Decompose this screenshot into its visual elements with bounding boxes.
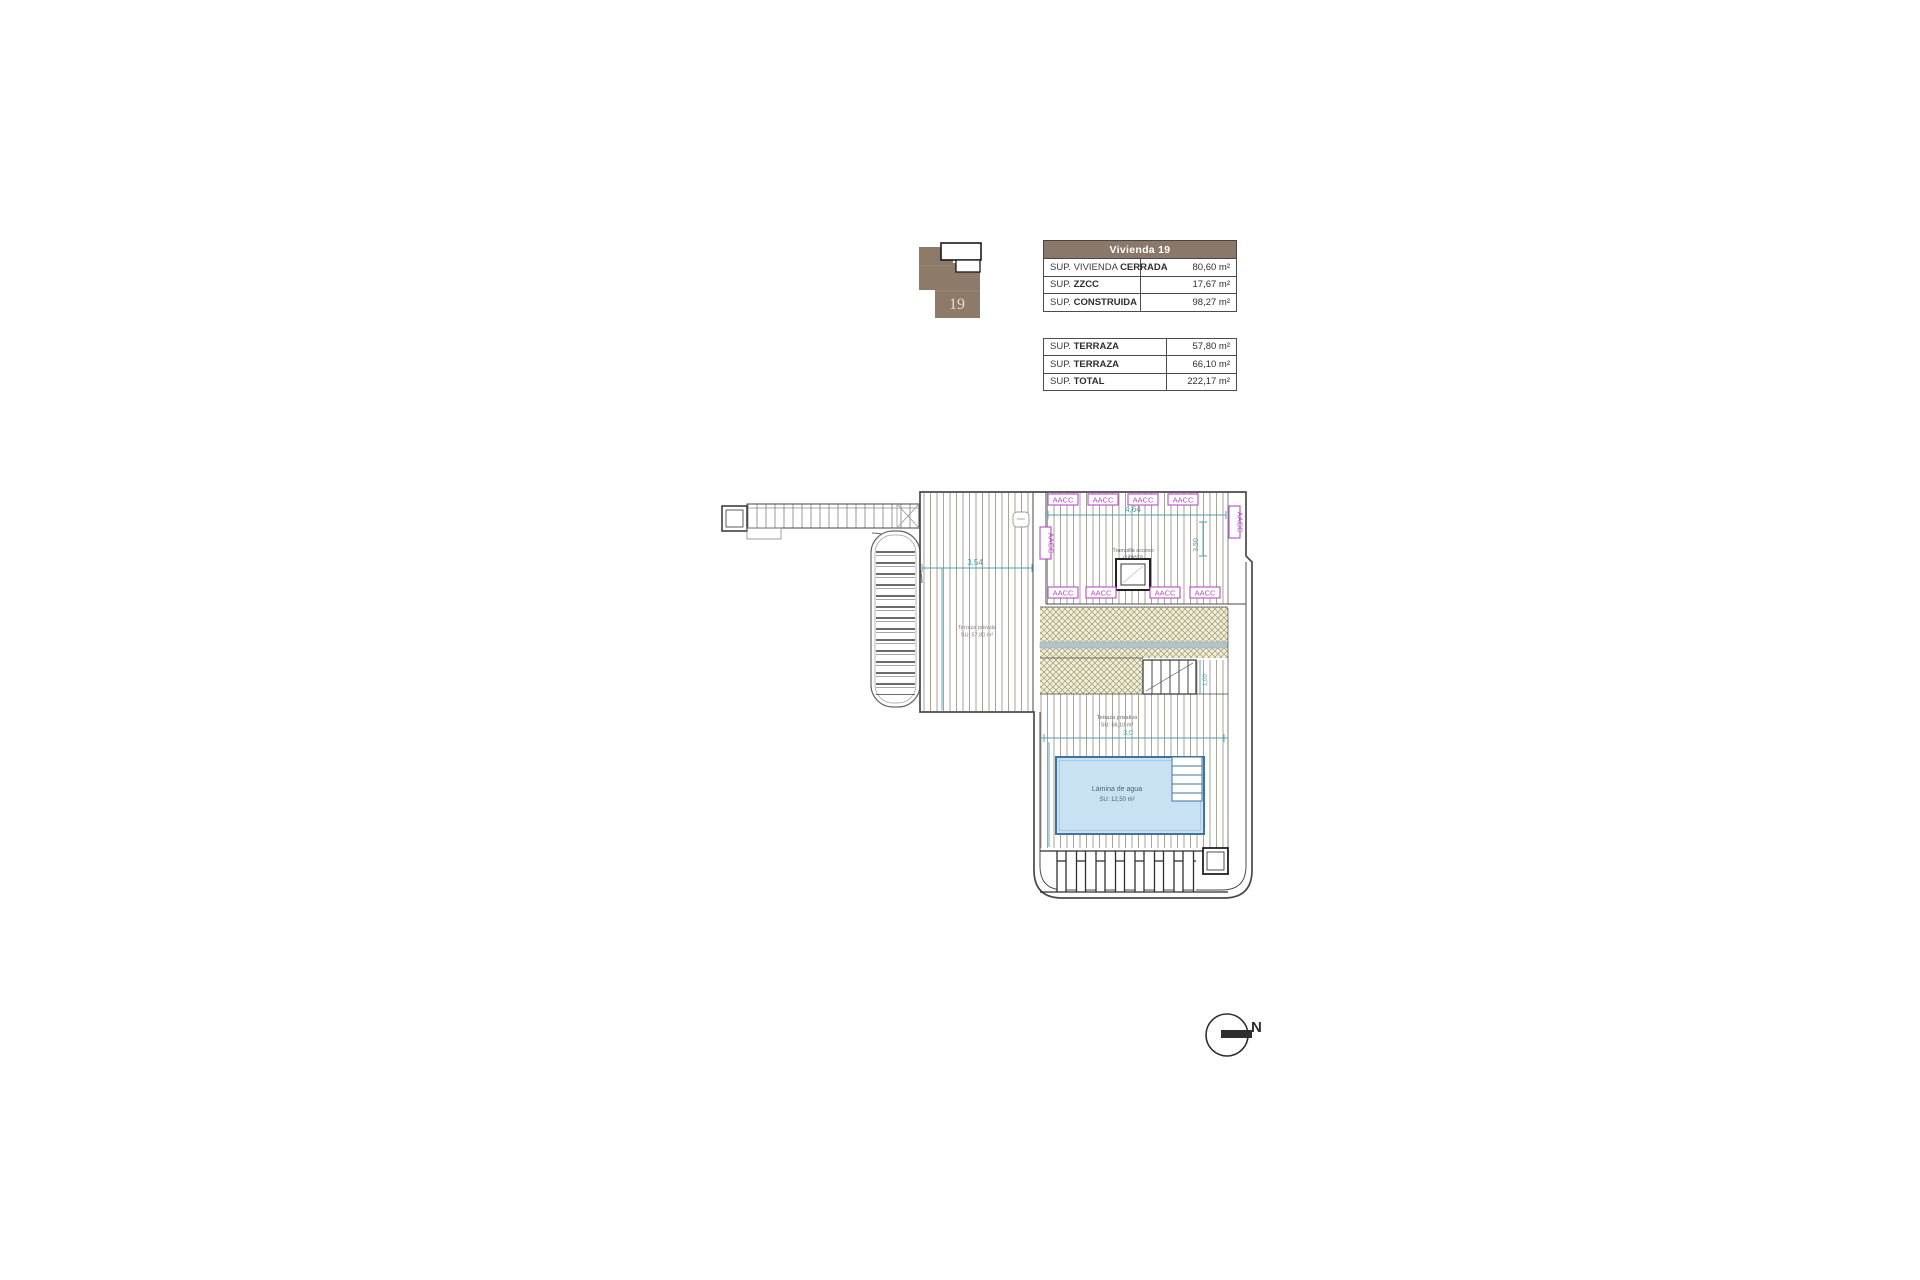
aacc-unit-box: AACC bbox=[1168, 494, 1198, 505]
aacc-unit-box: AACC bbox=[1086, 587, 1116, 598]
row-label: SUP. CONSTRUIDA bbox=[1044, 294, 1141, 312]
dim-left-deck: 3,54 bbox=[967, 558, 983, 567]
plan-sheet: 19 bbox=[0, 0, 1920, 1280]
row-label: SUP. TOTAL bbox=[1044, 373, 1167, 391]
aacc-unit-box: AACC bbox=[1088, 494, 1118, 505]
row-value: 57,80 m² bbox=[1167, 338, 1237, 356]
svg-text:AACC: AACC bbox=[1093, 496, 1114, 505]
pool-label-line2: SU: 12,50 m² bbox=[1099, 797, 1134, 803]
label-prefix: SUP. bbox=[1050, 279, 1074, 290]
label-bold: TOTAL bbox=[1074, 376, 1105, 387]
svg-text:AACC: AACC bbox=[1053, 589, 1074, 598]
svg-text:AACC: AACC bbox=[1053, 496, 1074, 505]
table-title: Vivienda 19 bbox=[1044, 241, 1237, 259]
page: { "key_plan": { "unit_number": "19" }, "… bbox=[0, 0, 1920, 1280]
compass: N bbox=[1206, 1014, 1262, 1056]
key-plan-unit-number: 19 bbox=[949, 296, 965, 313]
dim-right: 3,50 bbox=[1193, 538, 1200, 552]
terraza-upper-line2: SU: 57,80 m² bbox=[961, 633, 994, 639]
row-value: 98,27 m² bbox=[1140, 294, 1237, 312]
pool-label-line1: Lámina de agua bbox=[1092, 786, 1142, 793]
label-bold: TERRAZA bbox=[1074, 341, 1119, 352]
terraza-lower-line2: SU: 66,10 m² bbox=[1101, 723, 1134, 729]
row-label: SUP. TERRAZA bbox=[1044, 338, 1167, 356]
aacc-unit-box: AACC bbox=[1128, 494, 1158, 505]
table-row: SUP. TERRAZA 66,10 m² bbox=[1044, 356, 1237, 374]
aacc-unit-box: AACC bbox=[1150, 587, 1180, 598]
table-header-row: Vivienda 19 bbox=[1044, 241, 1237, 259]
compass-needle bbox=[1221, 1030, 1252, 1038]
svg-text:AACC: AACC bbox=[1173, 496, 1194, 505]
key-plan: 19 bbox=[919, 243, 981, 318]
hatch-label-line1: Trampilla acceso bbox=[1112, 548, 1153, 554]
dim-lower: 3,0 bbox=[1123, 730, 1133, 737]
label-prefix: SUP. bbox=[1050, 297, 1074, 308]
table-row: SUP. ZZCC 17,67 m² bbox=[1044, 276, 1237, 294]
row-value: 222,17 m² bbox=[1167, 373, 1237, 391]
table-row: SUP. CONSTRUIDA 98,27 m² bbox=[1044, 294, 1237, 312]
aacc-unit-box: AACC bbox=[1229, 506, 1245, 538]
aacc-unit-box: AACC bbox=[1190, 587, 1220, 598]
louver-pergola bbox=[1040, 848, 1228, 892]
north-label: N bbox=[1251, 1019, 1262, 1036]
table-row: SUP. TOTAL 222,17 m² bbox=[1044, 373, 1237, 391]
table-row: SUP. VIVIENDA CERRADA 80,60 m² bbox=[1044, 259, 1237, 277]
svg-text:AACC: AACC bbox=[1133, 496, 1154, 505]
aacc-unit-box: AACC bbox=[1048, 494, 1078, 505]
dim-stairs: 1,00 bbox=[1203, 674, 1209, 686]
terraza-lower-line1: Terraza privativa bbox=[1097, 715, 1138, 721]
key-plan-highlight-block bbox=[941, 243, 981, 260]
pool-steps bbox=[1172, 757, 1202, 801]
hatch-label-line2: cubierta bbox=[1123, 555, 1144, 561]
label-prefix: SUP. bbox=[1050, 376, 1074, 387]
drain-icon bbox=[1013, 512, 1029, 527]
terraza-upper-line1: Terraza privada bbox=[958, 625, 997, 631]
svg-text:AACC: AACC bbox=[1195, 589, 1216, 598]
label-prefix: SUP. bbox=[1050, 341, 1074, 352]
louver-screen bbox=[871, 531, 920, 707]
gutter-band bbox=[1040, 642, 1228, 648]
floor-plan-canvas: 19 bbox=[0, 0, 1920, 1280]
row-label: SUP. ZZCC bbox=[1044, 276, 1141, 294]
label-bold: TERRAZA bbox=[1074, 359, 1119, 370]
row-value: 66,10 m² bbox=[1167, 356, 1237, 374]
dim-top: 4,64 bbox=[1125, 505, 1141, 514]
louver-slats bbox=[876, 545, 915, 695]
roof-plan: Trampilla acceso cubierta Lámina de agua… bbox=[722, 492, 1252, 898]
svg-text:AACC: AACC bbox=[1236, 512, 1245, 533]
svg-text:AACC: AACC bbox=[1155, 589, 1176, 598]
label-prefix: SUP. bbox=[1050, 359, 1074, 370]
label-bold: CONSTRUIDA bbox=[1074, 297, 1137, 308]
pool: Lámina de agua SU: 12,50 m² bbox=[1056, 757, 1204, 834]
row-value: 17,67 m² bbox=[1140, 276, 1237, 294]
row-label: SUP. VIVIENDA CERRADA bbox=[1044, 259, 1141, 277]
row-label: SUP. TERRAZA bbox=[1044, 356, 1167, 374]
label-bold: CERRADA bbox=[1120, 262, 1168, 273]
area-tables: Vivienda 19 SUP. VIVIENDA CERRADA 80,60 … bbox=[1043, 240, 1237, 391]
label-bold: ZZCC bbox=[1074, 279, 1099, 290]
label-prefix: SUP. VIVIENDA bbox=[1050, 262, 1120, 273]
aacc-unit-box: AACC bbox=[1048, 587, 1078, 598]
table-row: SUP. TERRAZA 57,80 m² bbox=[1044, 338, 1237, 356]
key-plan-highlight-block-small bbox=[956, 260, 980, 272]
svg-text:AACC: AACC bbox=[1091, 589, 1112, 598]
stairs bbox=[1143, 660, 1196, 694]
area-summary-table: Vivienda 19 SUP. VIVIENDA CERRADA 80,60 … bbox=[1043, 240, 1237, 312]
terrace-summary-table: SUP. TERRAZA 57,80 m² SUP. TERRAZA 66,10… bbox=[1043, 338, 1237, 392]
svg-text:AACC: AACC bbox=[1047, 533, 1056, 554]
